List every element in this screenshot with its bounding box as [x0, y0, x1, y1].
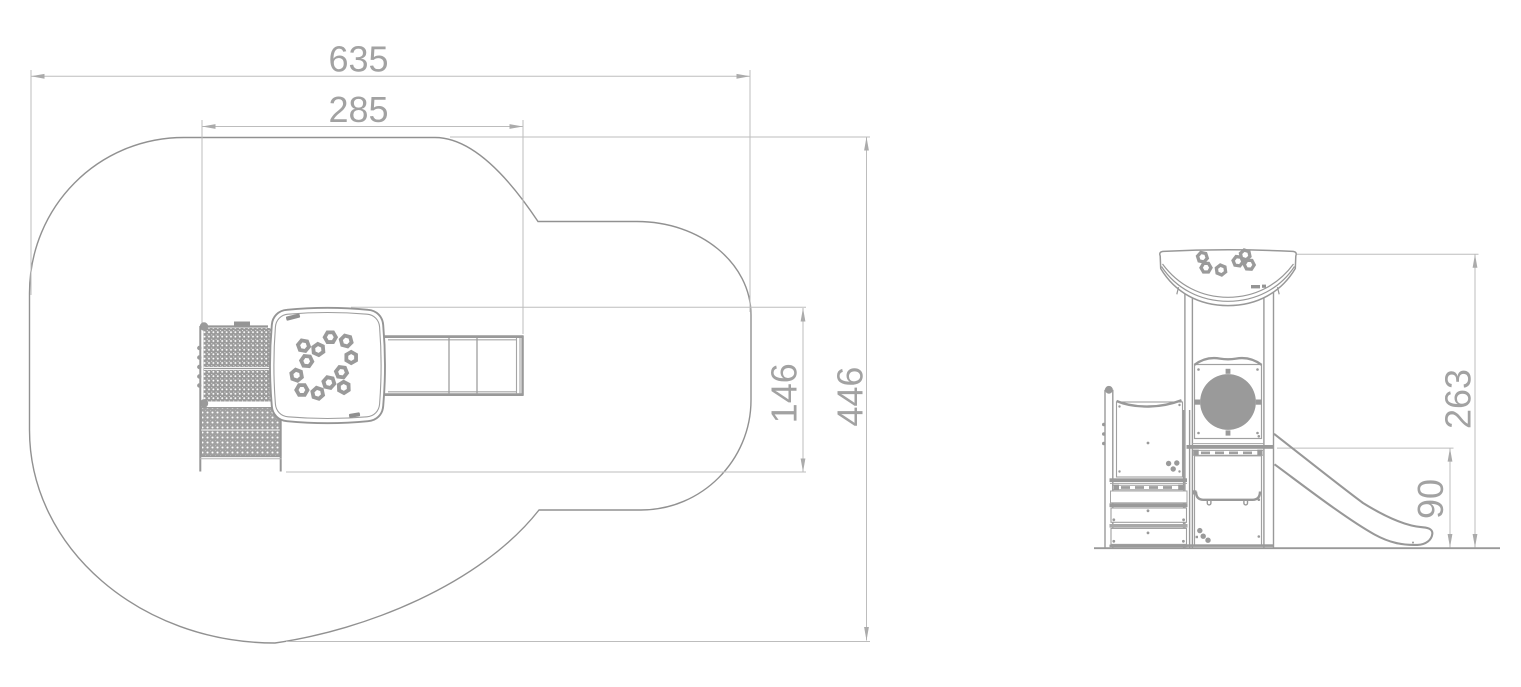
svg-text:285: 285 [328, 89, 388, 130]
svg-text:263: 263 [1438, 369, 1479, 429]
svg-text:635: 635 [328, 39, 388, 80]
svg-text:146: 146 [764, 363, 805, 423]
svg-text:90: 90 [1410, 479, 1451, 519]
svg-text:446: 446 [830, 367, 871, 427]
